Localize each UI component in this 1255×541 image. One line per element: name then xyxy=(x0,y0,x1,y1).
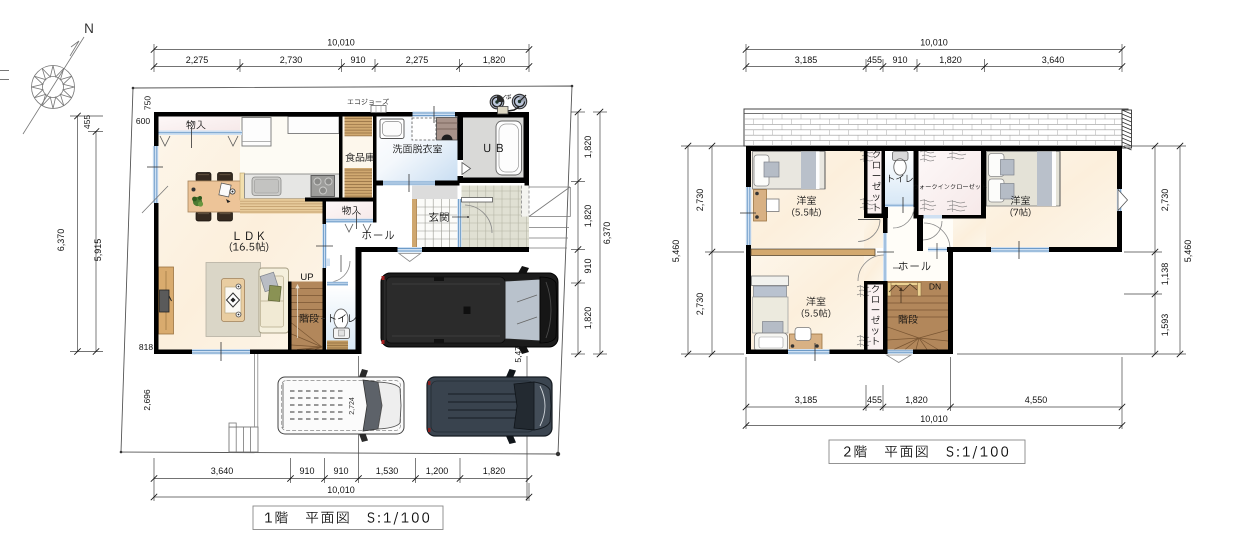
svg-text:2,275: 2,275 xyxy=(406,55,429,65)
svg-text:1,820: 1,820 xyxy=(939,55,962,65)
svg-text:UP: UP xyxy=(300,272,313,283)
svg-text:2,730: 2,730 xyxy=(695,189,705,212)
svg-text:1,138: 1,138 xyxy=(1160,263,1170,286)
svg-text:2,730: 2,730 xyxy=(1160,189,1170,212)
svg-text:1,820: 1,820 xyxy=(583,307,593,330)
svg-text:3,640: 3,640 xyxy=(211,466,234,476)
svg-text:2,730: 2,730 xyxy=(280,55,303,65)
svg-text:2,724: 2,724 xyxy=(349,397,356,415)
svg-text:6,370: 6,370 xyxy=(56,229,66,252)
svg-text:818: 818 xyxy=(139,342,153,352)
svg-text:6,370: 6,370 xyxy=(602,222,612,245)
svg-text:1,820: 1,820 xyxy=(905,395,928,405)
svg-text:10,010: 10,010 xyxy=(327,485,355,495)
svg-text:2,275: 2,275 xyxy=(186,55,209,65)
svg-text:910: 910 xyxy=(299,466,314,476)
svg-text:600: 600 xyxy=(136,116,150,126)
svg-text:1,820: 1,820 xyxy=(583,136,593,159)
svg-text:4,550: 4,550 xyxy=(1025,395,1048,405)
svg-text:5,915: 5,915 xyxy=(93,239,103,262)
svg-text:3,185: 3,185 xyxy=(795,55,818,65)
svg-text:1,820: 1,820 xyxy=(483,466,506,476)
svg-text:3,640: 3,640 xyxy=(1042,55,1065,65)
svg-text:10,010: 10,010 xyxy=(920,414,948,424)
svg-text:DN: DN xyxy=(929,282,941,292)
svg-text:1,820: 1,820 xyxy=(583,205,593,228)
svg-text:2,730: 2,730 xyxy=(695,293,705,316)
svg-text:1,530: 1,530 xyxy=(376,466,399,476)
svg-text:5,460: 5,460 xyxy=(671,240,681,263)
svg-text:10,010: 10,010 xyxy=(920,38,948,48)
svg-text:5,460: 5,460 xyxy=(1183,240,1193,263)
svg-text:1,200: 1,200 xyxy=(426,466,449,476)
svg-text:N: N xyxy=(84,21,94,36)
svg-text:2,696: 2,696 xyxy=(142,389,152,411)
svg-text:3,185: 3,185 xyxy=(795,395,818,405)
svg-text:1,820: 1,820 xyxy=(483,55,506,65)
svg-text:455: 455 xyxy=(867,395,882,405)
svg-text:1,593: 1,593 xyxy=(1160,314,1170,337)
svg-text:910: 910 xyxy=(583,258,593,273)
svg-text:455: 455 xyxy=(82,115,92,129)
svg-text:10,010: 10,010 xyxy=(327,38,355,48)
svg-text:910: 910 xyxy=(333,466,348,476)
svg-text:750: 750 xyxy=(143,96,153,110)
svg-text:910: 910 xyxy=(892,55,907,65)
svg-text:455: 455 xyxy=(867,55,882,65)
svg-text:910: 910 xyxy=(350,55,365,65)
